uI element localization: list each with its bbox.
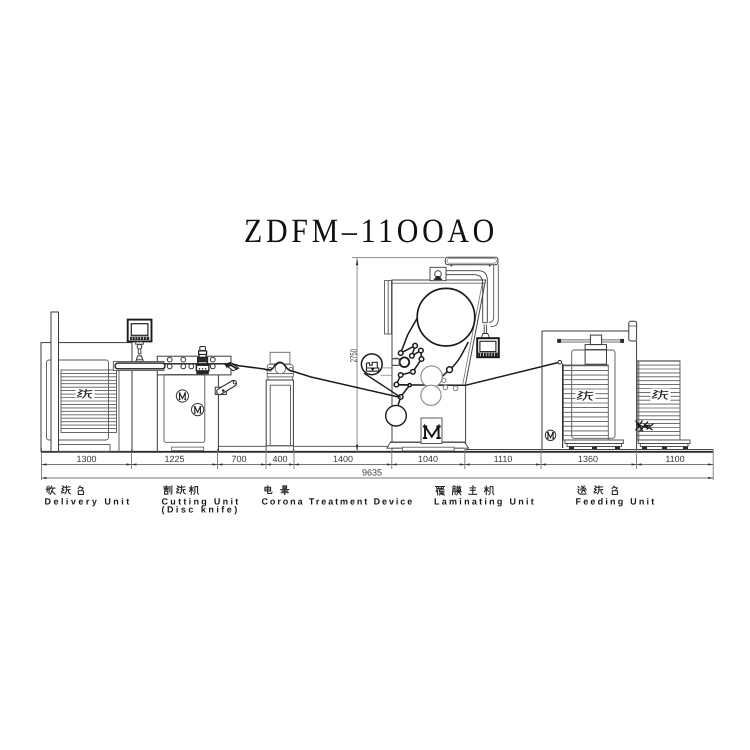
- svg-text:1100: 1100: [665, 454, 684, 464]
- svg-text:9635: 9635: [362, 468, 382, 478]
- svg-text:Corona Treatment Device: Corona Treatment Device: [262, 497, 414, 507]
- svg-text:1300: 1300: [76, 454, 96, 464]
- svg-text:Delivery Unit: Delivery Unit: [45, 497, 131, 507]
- svg-text:1225: 1225: [164, 454, 184, 464]
- svg-text:1110: 1110: [494, 454, 513, 464]
- svg-text:Laminating Unit: Laminating Unit: [434, 497, 535, 507]
- svg-text:Feeding Unit: Feeding Unit: [576, 497, 656, 507]
- svg-text:(Disc knife): (Disc knife): [162, 505, 239, 515]
- svg-text:1040: 1040: [418, 454, 438, 464]
- svg-text:1400: 1400: [333, 454, 353, 464]
- svg-text:ZDFM–11OOAO: ZDFM–11OOAO: [244, 213, 498, 250]
- svg-text:400: 400: [272, 454, 287, 464]
- svg-text:2750: 2750: [349, 349, 359, 363]
- svg-text:700: 700: [231, 454, 246, 464]
- svg-text:1360: 1360: [578, 454, 598, 464]
